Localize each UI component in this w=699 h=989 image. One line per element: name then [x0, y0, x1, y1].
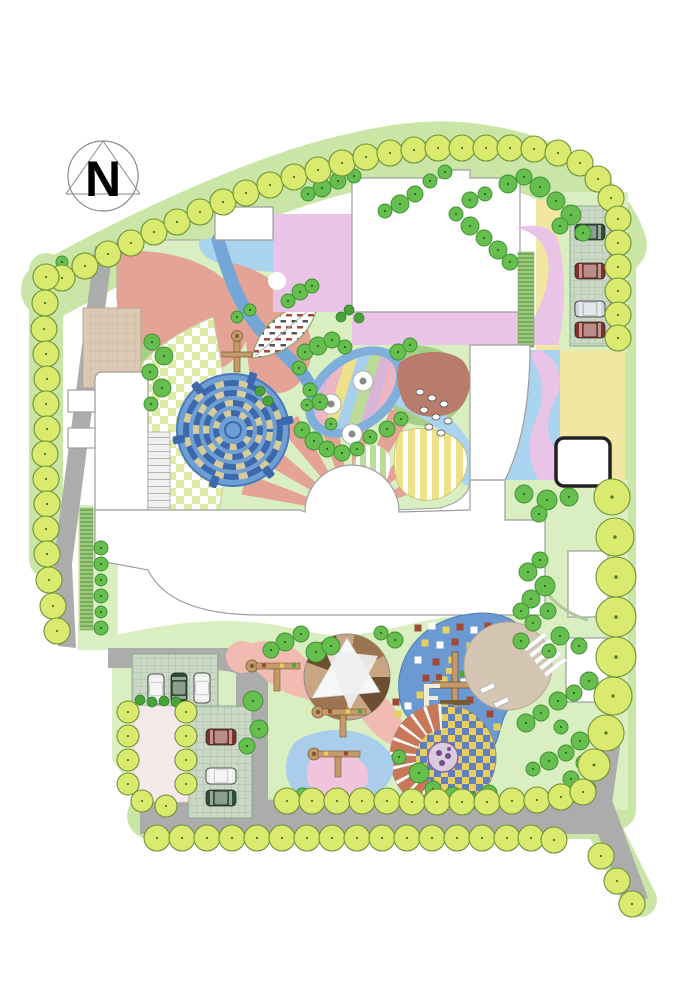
car [575, 301, 605, 317]
pink-strip-notch [268, 272, 286, 290]
car [575, 263, 605, 279]
east-entrance-canopy [556, 438, 610, 486]
car [194, 673, 210, 703]
building-north-main [352, 170, 520, 312]
purple-mosaic-center [428, 742, 458, 772]
landscape-master-plan: N [0, 0, 699, 989]
car [206, 768, 236, 784]
north-label: N [85, 151, 121, 207]
car [206, 790, 236, 806]
car [206, 729, 236, 745]
west-entrance-step [68, 390, 95, 412]
hedge-strip-east [518, 252, 534, 347]
car [575, 322, 605, 338]
site-plan-svg: N [0, 0, 699, 989]
hedge-strip-west [80, 508, 93, 630]
stairs [148, 432, 170, 510]
terracotta-mound [397, 352, 470, 417]
building-west-wing [95, 372, 148, 510]
